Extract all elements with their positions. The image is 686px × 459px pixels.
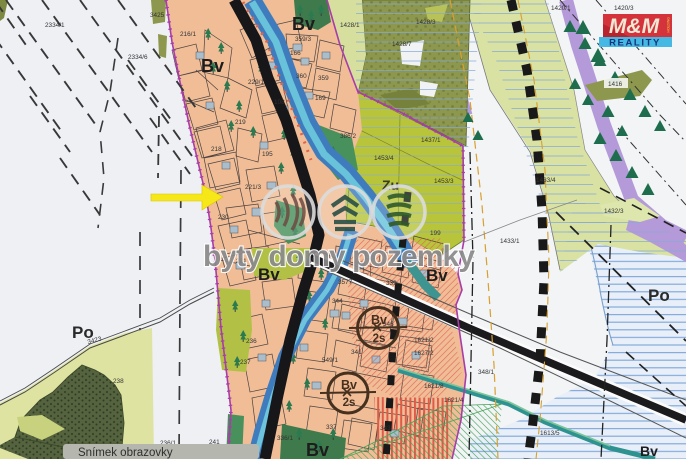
svg-text:Bv: Bv [371, 313, 387, 327]
svg-text:1621/8: 1621/8 [424, 383, 444, 390]
svg-text:REALITY: REALITY [609, 38, 661, 49]
svg-text:2s: 2s [373, 333, 386, 345]
svg-text:1433/1: 1433/1 [500, 238, 520, 245]
svg-text:Snímek obrazovky: Snímek obrazovky [78, 447, 173, 459]
svg-text:Bv: Bv [306, 440, 329, 459]
svg-text:219: 219 [235, 119, 246, 126]
svg-text:1420/3: 1420/3 [614, 5, 634, 12]
svg-text:230: 230 [218, 214, 229, 221]
svg-text:218: 218 [211, 146, 222, 153]
svg-text:1428/7: 1428/7 [392, 41, 412, 48]
svg-text:Bv: Bv [292, 14, 315, 34]
svg-text:3425: 3425 [150, 12, 165, 19]
svg-text:1453/3: 1453/3 [434, 178, 454, 185]
svg-text:195: 195 [262, 151, 273, 158]
svg-text:1432/3: 1432/3 [604, 208, 624, 215]
svg-text:2s: 2s [343, 397, 356, 409]
svg-text:169: 169 [315, 95, 326, 102]
svg-text:336/1: 336/1 [277, 435, 293, 442]
svg-text:348/1: 348/1 [478, 369, 494, 376]
svg-text:238: 238 [113, 378, 124, 385]
svg-text:M&M: M&M [609, 15, 660, 38]
svg-text:2334/6: 2334/6 [128, 54, 148, 61]
svg-text:339: 339 [386, 280, 397, 287]
svg-text:337: 337 [326, 424, 337, 431]
svg-text:108: 108 [274, 99, 285, 106]
svg-text:344: 344 [332, 298, 343, 305]
svg-text:byty domy pozemky: byty domy pozemky [203, 240, 475, 273]
svg-text:386/2: 386/2 [340, 133, 356, 140]
svg-text:359/3: 359/3 [295, 36, 311, 43]
svg-text:Bv: Bv [341, 378, 357, 392]
svg-text:Bv: Bv [201, 56, 224, 76]
svg-text:343: 343 [380, 425, 391, 432]
svg-text:1416: 1416 [608, 81, 623, 88]
svg-text:2334/1: 2334/1 [45, 22, 65, 29]
svg-text:216/1: 216/1 [180, 31, 196, 38]
svg-text:166: 166 [290, 50, 301, 57]
svg-text:HOLDING: HOLDING [667, 17, 671, 33]
svg-text:Po: Po [648, 286, 670, 305]
svg-text:1621/2: 1621/2 [414, 337, 434, 344]
svg-text:1621/4: 1621/4 [444, 397, 464, 404]
svg-text:1428/3: 1428/3 [416, 19, 436, 26]
svg-text:221/3: 221/3 [245, 184, 261, 191]
svg-text:3577: 3577 [338, 279, 353, 286]
svg-text:Bv: Bv [640, 443, 658, 459]
svg-text:1613/5: 1613/5 [540, 430, 560, 437]
svg-text:237: 237 [240, 359, 251, 366]
svg-text:199: 199 [430, 230, 441, 237]
svg-text:1437/1: 1437/1 [421, 137, 441, 144]
svg-text:1420/1: 1420/1 [551, 5, 571, 12]
svg-text:341: 341 [351, 349, 362, 356]
svg-text:1627/2: 1627/2 [414, 350, 434, 357]
svg-text:360: 360 [296, 73, 307, 80]
svg-text:236: 236 [246, 338, 257, 345]
svg-text:549/1: 549/1 [322, 357, 338, 364]
svg-text:Po: Po [72, 323, 94, 342]
svg-text:229/1: 229/1 [248, 79, 264, 86]
svg-text:1433/4: 1433/4 [536, 177, 556, 184]
svg-text:359: 359 [318, 75, 329, 82]
svg-text:1453/4: 1453/4 [374, 155, 394, 162]
svg-text:1428/1: 1428/1 [340, 22, 360, 29]
